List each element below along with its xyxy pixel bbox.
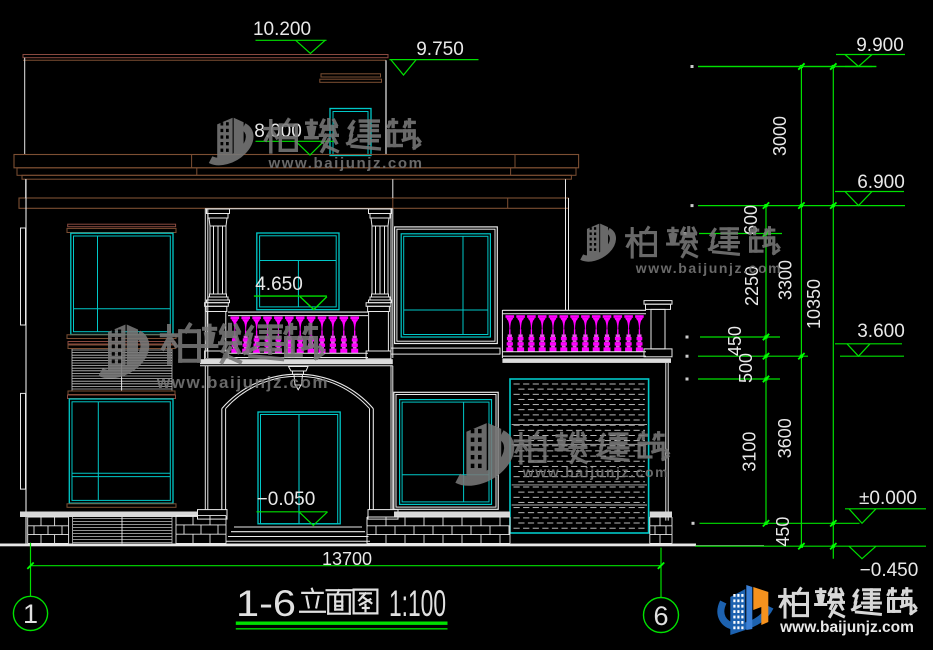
svg-text:1:100: 1:100 (389, 583, 446, 624)
svg-text:9.750: 9.750 (416, 39, 464, 60)
svg-text:450: 450 (725, 326, 745, 356)
svg-text:−0.450: −0.450 (860, 560, 919, 581)
svg-text:6.900: 6.900 (857, 172, 905, 193)
svg-text:www.baijunjz.com: www.baijunjz.com (267, 155, 423, 172)
svg-text:450: 450 (773, 517, 793, 547)
svg-text:3600: 3600 (775, 418, 795, 458)
svg-text:www.baijunjz.com: www.baijunjz.com (156, 373, 329, 392)
svg-text:10350: 10350 (804, 279, 824, 329)
svg-text:6: 6 (653, 601, 668, 631)
svg-text:www.baijunjz.com: www.baijunjz.com (635, 260, 782, 276)
svg-text:13700: 13700 (322, 549, 372, 569)
svg-text:4.650: 4.650 (255, 274, 303, 295)
svg-text:1-6: 1-6 (236, 583, 296, 624)
svg-text:±0.000: ±0.000 (859, 488, 917, 509)
svg-text:−0.050: −0.050 (257, 489, 316, 510)
svg-text:1: 1 (23, 599, 38, 629)
svg-text:500: 500 (736, 353, 756, 383)
svg-text:9.900: 9.900 (856, 35, 904, 56)
svg-text:www.baijunjz.com: www.baijunjz.com (522, 464, 669, 480)
svg-text:3100: 3100 (740, 432, 760, 472)
svg-text:3000: 3000 (770, 116, 790, 156)
svg-text:3.600: 3.600 (857, 321, 905, 342)
svg-text:www.baijunjz.com: www.baijunjz.com (779, 619, 914, 636)
svg-text:10.200: 10.200 (253, 19, 311, 40)
